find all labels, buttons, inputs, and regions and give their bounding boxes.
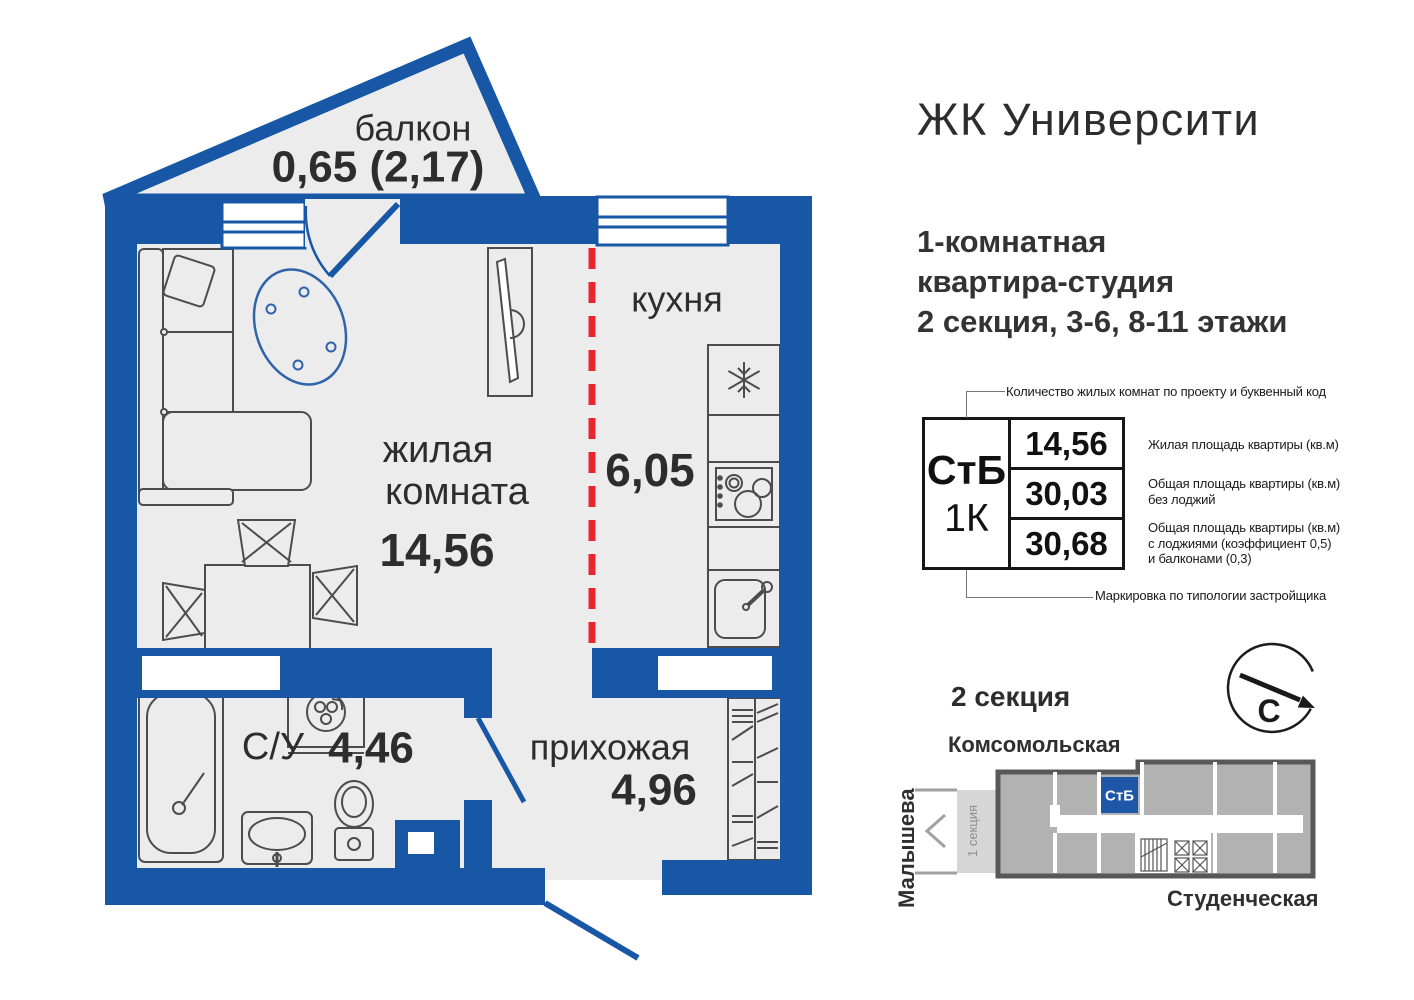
bathroom-label: С/У <box>242 726 305 768</box>
spec-total-area: 30,03 <box>1011 467 1122 517</box>
floor-plan: балкон 0,65 (2,17) жилая комната 14,56 к… <box>80 10 860 995</box>
spec-top-note: Количество жилых комнат по проекту и бук… <box>1006 384 1326 399</box>
project-title: ЖК Университи <box>917 94 1260 146</box>
spec-total-area-full: 30,68 <box>1011 517 1122 567</box>
spec-code-cell: СтБ 1К <box>925 420 1011 567</box>
leader-line-bottom <box>966 570 1093 598</box>
hallway-area: 4,96 <box>611 766 697 815</box>
spec-type-code: СтБ <box>927 450 1006 491</box>
spec-desc-row3: Общая площадь квартиры (кв.м) с лоджиями… <box>1148 520 1340 567</box>
leader-line-top <box>966 391 1005 418</box>
street-break-icon <box>927 815 945 847</box>
floorplan-page: балкон 0,65 (2,17) жилая комната 14,56 к… <box>0 0 1414 1000</box>
bathtub <box>139 683 223 862</box>
stairs-icon <box>1141 839 1167 871</box>
neighbor-section-label: 1 секция <box>965 805 980 857</box>
bathroom-area: 4,46 <box>328 724 414 773</box>
spec-desc-row1: Жилая площадь квартиры (кв.м) <box>1148 437 1339 453</box>
entrance-door-leaf <box>545 903 638 958</box>
subtitle-line-1: 1-комнатная <box>917 222 1287 262</box>
compass-icon: С <box>1222 638 1322 738</box>
spec-desc-row2: Общая площадь квартиры (кв.м) без лоджий <box>1148 476 1340 507</box>
wardrobe <box>728 698 782 860</box>
spec-living-area: 14,56 <box>1011 420 1122 467</box>
kitchen-window <box>597 197 728 245</box>
spec-bottom-note: Маркировка по типологии застройщика <box>1095 588 1326 603</box>
bathroom-sink <box>242 812 312 867</box>
spec-table: СтБ 1К 14,56 30,03 30,68 <box>922 417 1125 570</box>
living-label-1: жилая <box>383 429 494 471</box>
spec-values: 14,56 30,03 30,68 <box>1011 420 1122 567</box>
compass-north-label: С <box>1257 693 1280 729</box>
living-area: 14,56 <box>379 524 494 576</box>
kitchen-label: кухня <box>631 279 723 320</box>
highlighted-unit-label: СтБ <box>1105 788 1134 805</box>
toilet <box>335 781 373 860</box>
living-label-2: комната <box>385 471 530 513</box>
balcony-window <box>222 202 305 248</box>
apartment-subtitle: 1-комнатная квартира-студия 2 секция, 3-… <box>917 222 1287 342</box>
tv-unit <box>488 248 532 396</box>
subtitle-line-2: квартира-студия <box>917 262 1287 302</box>
spec-rooms-code: 1К <box>944 499 988 538</box>
building-section-map: 1 секция СтБ <box>895 745 1345 895</box>
balcony-area: 0,65 (2,17) <box>272 143 485 192</box>
section-heading: 2 секция <box>951 681 1070 713</box>
subtitle-line-3: 2 секция, 3-6, 8-11 этажи <box>917 302 1287 342</box>
kitchen-area: 6,05 <box>605 444 695 496</box>
hallway-label: прихожая <box>530 727 690 768</box>
